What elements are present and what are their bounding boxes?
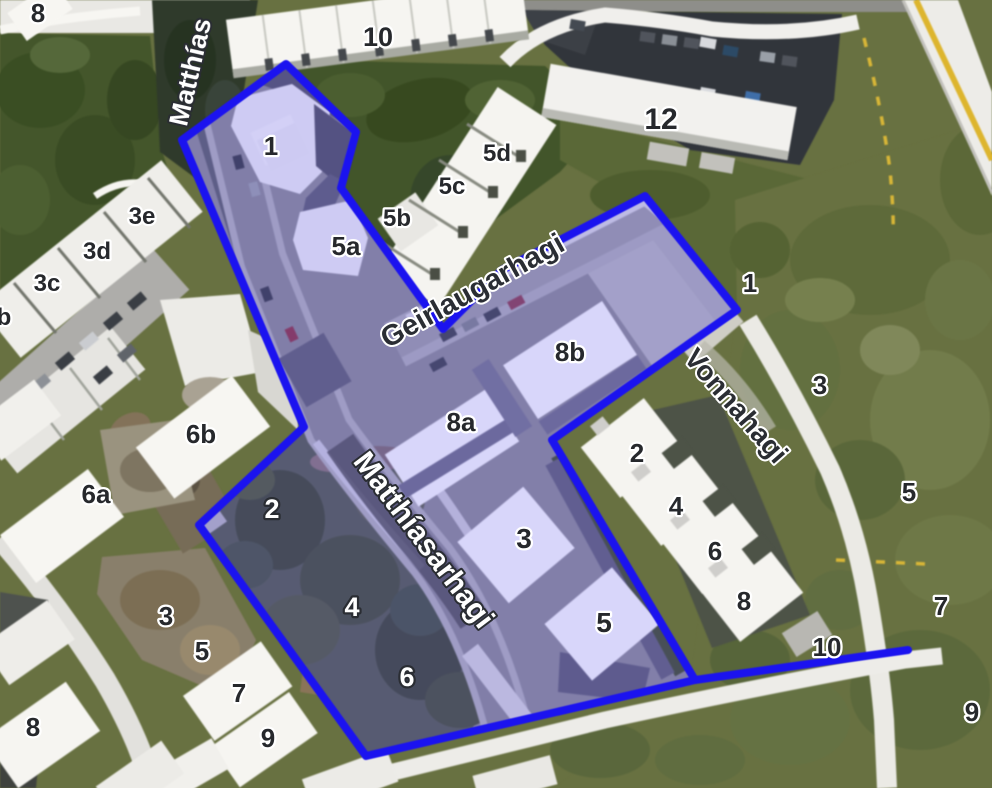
svg-text:6: 6 — [708, 536, 722, 566]
svg-text:3: 3 — [159, 601, 173, 631]
svg-text:8: 8 — [26, 712, 40, 742]
svg-text:5: 5 — [195, 636, 209, 666]
svg-text:7: 7 — [232, 678, 246, 708]
svg-text:12: 12 — [644, 103, 677, 136]
svg-text:5d: 5d — [483, 140, 511, 167]
svg-text:5b: 5b — [383, 205, 411, 232]
svg-text:3: 3 — [516, 523, 532, 554]
svg-text:1: 1 — [264, 131, 278, 161]
svg-text:6: 6 — [399, 662, 414, 692]
svg-text:8a: 8a — [447, 407, 476, 437]
svg-text:10: 10 — [363, 22, 393, 52]
svg-text:8: 8 — [31, 0, 45, 28]
svg-text:8b: 8b — [555, 337, 585, 367]
svg-text:1: 1 — [743, 268, 757, 298]
svg-text:3d: 3d — [83, 238, 111, 265]
svg-text:6a: 6a — [82, 479, 111, 509]
svg-text:5a: 5a — [332, 231, 361, 261]
svg-text:3c: 3c — [34, 270, 61, 297]
svg-text:b: b — [0, 304, 11, 331]
svg-text:5: 5 — [596, 607, 612, 638]
svg-text:4: 4 — [669, 491, 684, 521]
svg-text:2: 2 — [630, 438, 644, 468]
svg-text:5: 5 — [902, 477, 916, 507]
svg-text:10: 10 — [813, 632, 842, 662]
svg-text:4: 4 — [344, 592, 359, 622]
svg-text:9: 9 — [965, 697, 979, 727]
svg-text:3e: 3e — [129, 203, 156, 230]
svg-text:9: 9 — [261, 723, 275, 753]
svg-text:3: 3 — [813, 370, 827, 400]
svg-text:5c: 5c — [439, 173, 466, 200]
svg-text:7: 7 — [934, 591, 948, 621]
svg-text:8: 8 — [737, 586, 751, 616]
svg-text:2: 2 — [264, 494, 279, 524]
svg-text:6b: 6b — [186, 419, 216, 449]
